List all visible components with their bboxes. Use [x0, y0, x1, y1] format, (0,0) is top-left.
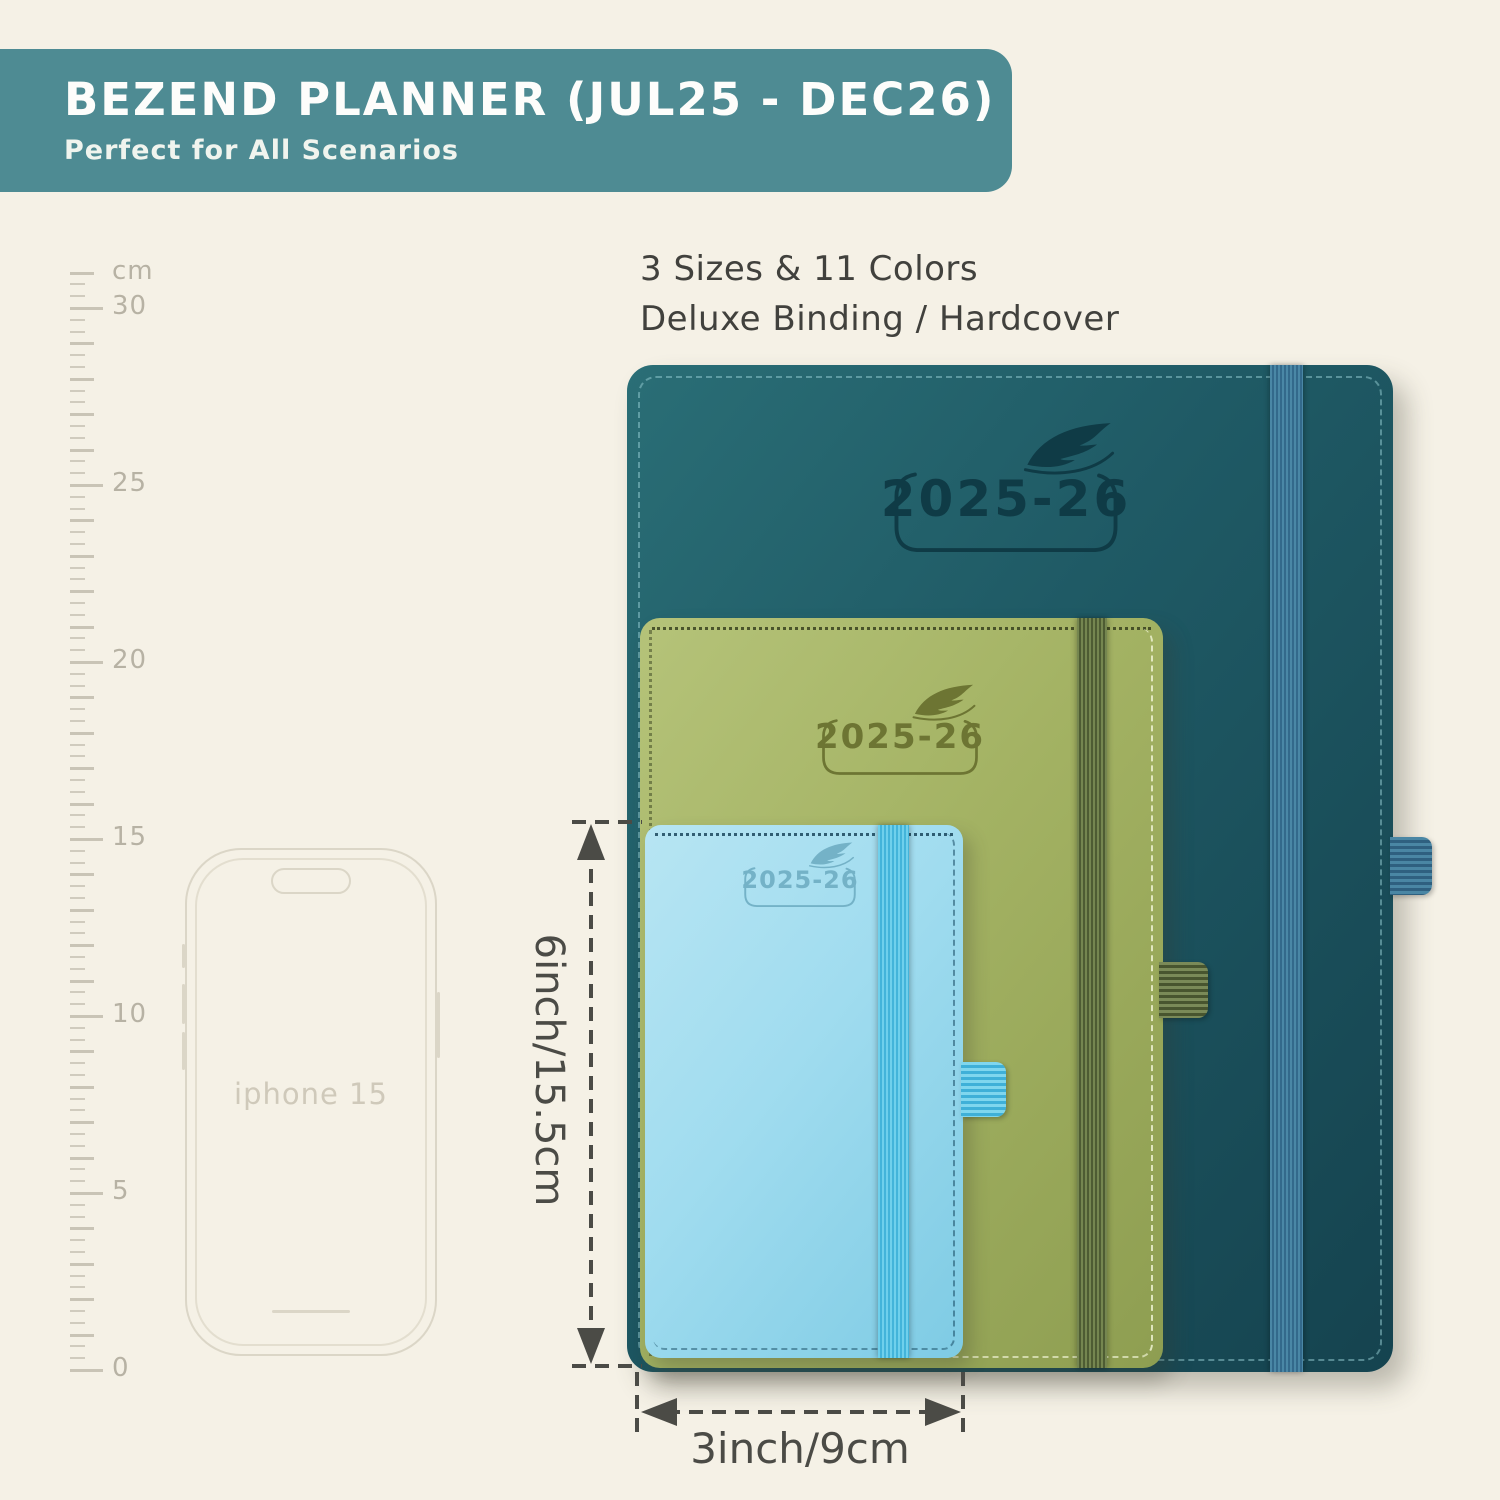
ruler-tick	[70, 1322, 85, 1324]
ruler-tick	[70, 956, 85, 958]
ruler-tick	[70, 519, 94, 522]
ruler-tick	[70, 838, 103, 841]
ruler-tick	[70, 567, 85, 569]
ruler-tick	[70, 909, 94, 912]
ruler-tick	[70, 626, 94, 629]
year-label: 2025-26	[737, 868, 863, 892]
ruler-tick	[70, 1109, 85, 1111]
ruler-tick	[70, 543, 85, 545]
phone-button-icon	[437, 992, 440, 1058]
ruler-tick	[70, 449, 94, 452]
ruler-tick	[70, 1345, 85, 1347]
ruler-tick	[70, 826, 85, 828]
product-image: BEZEND PLANNER (JUL25 - DEC26) Perfect f…	[0, 0, 1500, 1500]
ruler-tick	[70, 732, 94, 735]
ruler-tick	[70, 980, 94, 983]
cover-logo: 2025-26	[737, 842, 863, 910]
ruler-tick	[70, 791, 85, 793]
elastic-band	[878, 825, 909, 1358]
ruler-tick	[70, 508, 85, 510]
ruler-tick	[70, 366, 85, 368]
ruler-tick	[70, 1334, 94, 1337]
ruler-tick	[70, 673, 85, 675]
ruler-tick	[70, 496, 85, 498]
ruler-tick	[70, 1168, 85, 1170]
ruler-tick	[70, 637, 85, 639]
ruler-tick	[70, 1003, 85, 1005]
cover-logo: 2025-26	[812, 684, 988, 779]
ruler-tick	[70, 814, 85, 816]
ruler-tick	[70, 744, 85, 746]
ruler-tick	[70, 779, 85, 781]
ruler-tick	[70, 685, 85, 687]
ruler-label: 10	[112, 999, 147, 1029]
ruler-tick	[70, 932, 85, 934]
elastic-band	[1270, 365, 1303, 1372]
ruler-tick	[70, 1263, 94, 1266]
ruler-tick	[70, 401, 85, 403]
ruler-label: 30	[112, 291, 147, 321]
height-dimension-label: 6inch/15.5cm	[526, 934, 572, 1207]
ruler-tick	[70, 708, 85, 710]
ruler-tick	[70, 1227, 94, 1230]
stitching	[653, 833, 955, 1350]
ruler-tick	[70, 1098, 85, 1100]
ruler-tick	[70, 460, 85, 462]
ruler-tick	[70, 331, 85, 333]
ruler-tick	[70, 378, 94, 381]
pen-loop	[1159, 962, 1208, 1018]
arrow-right-icon	[925, 1398, 961, 1426]
ruler-tick	[70, 1286, 85, 1288]
feature-line-binding: Deluxe Binding / Hardcover	[640, 294, 1119, 344]
year-label: 2025-26	[880, 474, 1132, 524]
ruler-tick	[70, 1239, 85, 1241]
feature-text: 3 Sizes & 11 Colors Deluxe Binding / Har…	[640, 244, 1119, 344]
ruler-label: 15	[112, 822, 147, 852]
ruler-tick	[70, 307, 103, 310]
ruler-tick	[70, 319, 85, 321]
ruler-tick	[70, 1074, 85, 1076]
phone-button-icon	[182, 944, 185, 968]
ruler-tick	[70, 767, 94, 770]
ruler-tick	[70, 1251, 85, 1253]
ruler-tick	[70, 1015, 103, 1018]
ruler-tick	[70, 1216, 85, 1218]
phone-dynamic-island	[271, 868, 351, 894]
ruler-tick	[70, 437, 85, 439]
ruler-tick	[70, 661, 103, 664]
ruler-tick	[70, 720, 85, 722]
ruler-label: 20	[112, 645, 147, 675]
ruler-tick	[70, 921, 85, 923]
ruler-tick	[70, 590, 94, 593]
ruler-tick	[70, 531, 85, 533]
width-dimension-label: 3inch/9cm	[690, 1424, 910, 1473]
ruler-tick	[70, 1086, 94, 1089]
ruler-tick	[70, 1027, 85, 1029]
ruler-label: 0	[112, 1353, 130, 1383]
ruler-tick	[70, 614, 85, 616]
ruler-tick	[70, 897, 85, 899]
ruler-tick	[70, 1204, 85, 1206]
feather-icon	[1027, 423, 1110, 467]
ruler-tick	[70, 1039, 85, 1041]
page-title: BEZEND PLANNER (JUL25 - DEC26)	[64, 75, 1012, 125]
ruler-tick	[70, 1298, 94, 1301]
ruler-tick	[70, 1050, 94, 1053]
pen-loop	[1390, 837, 1432, 895]
feather-icon	[915, 685, 973, 716]
feature-line-sizes: 3 Sizes & 11 Colors	[640, 244, 1119, 294]
ruler-label: 5	[112, 1176, 130, 1206]
ruler-label: cm	[112, 256, 154, 286]
ruler-tick	[70, 1133, 85, 1135]
ruler-tick	[70, 1121, 94, 1124]
ruler-tick	[70, 354, 85, 356]
phone-button-icon	[182, 1032, 185, 1070]
ruler-tick	[70, 272, 94, 275]
phone-label: iphone 15	[187, 1077, 435, 1111]
ruler-tick	[70, 1275, 85, 1277]
ruler-tick	[70, 873, 94, 876]
ruler-tick	[70, 862, 85, 864]
ruler-tick	[70, 390, 85, 392]
arrow-down-icon	[577, 1328, 605, 1364]
ruler-tick	[70, 1369, 103, 1372]
ruler-tick	[70, 944, 94, 947]
ruler-tick	[70, 1062, 85, 1064]
ruler-tick	[70, 1180, 85, 1182]
arrow-up-icon	[577, 824, 605, 860]
ruler-tick	[70, 602, 85, 604]
ruler-tick	[70, 885, 85, 887]
ruler-tick	[70, 578, 85, 580]
ruler-tick	[70, 1310, 85, 1312]
ruler-tick	[70, 649, 85, 651]
phone-button-icon	[182, 984, 185, 1024]
ruler-tick	[70, 1145, 85, 1147]
ruler-tick	[70, 968, 85, 970]
phone-outline: iphone 15	[185, 848, 437, 1356]
title-banner: BEZEND PLANNER (JUL25 - DEC26) Perfect f…	[0, 49, 1012, 192]
pen-loop	[961, 1062, 1006, 1117]
cover-logo: 2025-26	[880, 422, 1132, 558]
ruler-tick	[70, 991, 85, 993]
ruler-tick	[70, 696, 94, 699]
ruler-tick	[70, 283, 85, 285]
arrow-left-icon	[641, 1398, 677, 1426]
phone-home-bar	[272, 1310, 350, 1313]
ruler-tick	[70, 472, 85, 474]
ruler-tick	[70, 803, 94, 806]
ruler-tick	[70, 295, 85, 297]
planner-small: 2025-26	[645, 825, 963, 1358]
ruler-tick	[70, 1157, 94, 1160]
elastic-band	[1077, 618, 1107, 1368]
ruler-tick	[70, 484, 103, 487]
ruler-tick	[70, 555, 94, 558]
year-label: 2025-26	[812, 720, 988, 754]
ruler-tick	[70, 425, 85, 427]
ruler-label: 25	[112, 468, 147, 498]
ruler-tick	[70, 1192, 103, 1195]
page-subtitle: Perfect for All Scenarios	[64, 135, 1012, 166]
ruler-tick	[70, 755, 85, 757]
ruler-tick	[70, 342, 94, 345]
feather-icon	[811, 843, 853, 865]
ruler-tick	[70, 1357, 85, 1359]
ruler-tick	[70, 850, 85, 852]
ruler-tick	[70, 413, 94, 416]
